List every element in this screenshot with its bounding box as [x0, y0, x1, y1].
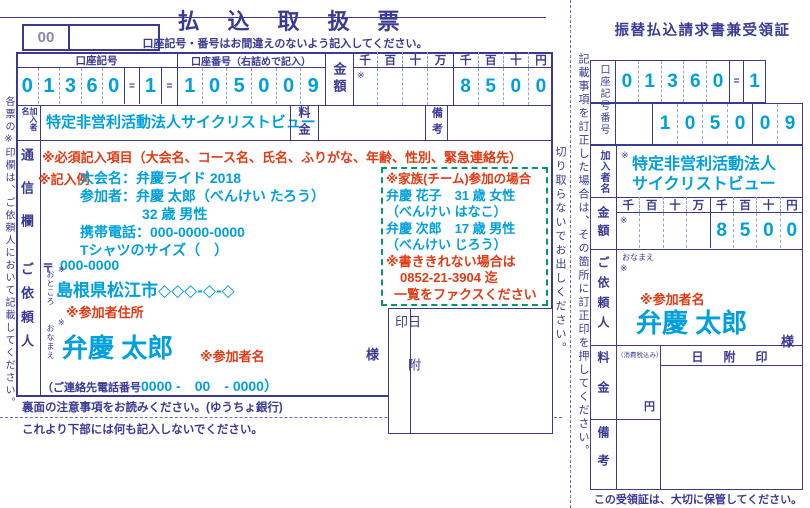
- receipt-date-stamp-label: 日 附 印: [662, 349, 801, 363]
- amount-digit-cell: 0: [780, 213, 803, 248]
- slip-title: 払 込 取 扱 票: [150, 5, 430, 35]
- amount-digit-cell[interactable]: [402, 68, 427, 105]
- amount-digit-cell[interactable]: 0: [503, 68, 528, 105]
- unit-cell: 百: [733, 197, 756, 212]
- amount-digit-row[interactable]: 8 5 0 0: [353, 68, 553, 105]
- receipt-payee-asterisk: ※: [621, 150, 629, 161]
- receipt-number-digit-cell: 0: [752, 104, 777, 144]
- fee-label: 料金: [290, 105, 318, 140]
- amount-unit-row: 千 百 十 万 千 百 十 円: [353, 52, 553, 68]
- footer-note-2: これより下部には何も記入しないでください。: [22, 421, 263, 437]
- overflow-note: 一覧をファクスください: [386, 287, 546, 304]
- receipt-symbol-digit-cell: 0: [616, 61, 638, 102]
- receipt-payee-name-line2: サイクリストビュー: [632, 170, 776, 194]
- amount-digit-cell[interactable]: [377, 68, 402, 105]
- unit-cell: 万: [686, 197, 709, 212]
- name-asterisk: ※: [58, 318, 65, 327]
- address-kana-label: おところ: [46, 270, 54, 312]
- payee-name[interactable]: 特定非営利活動法人サイクリストビュー: [46, 111, 316, 132]
- overflow-note: ※書ききれない場合は: [386, 254, 546, 271]
- amount-digit-cell: 0: [756, 213, 779, 248]
- required-note: ※必須記入項目（大会名、コース名、氏名、ふりがな、年齢、性別、緊急連絡先）: [42, 147, 522, 166]
- unit-cell: 円: [528, 52, 553, 67]
- symbol-digit-cell[interactable]: 1: [38, 68, 60, 104]
- phone-row[interactable]: （ご連絡先電話番号 0000 - 00 - 0000）: [42, 376, 278, 396]
- receipt-symbol-digit-cell: 6: [683, 61, 706, 102]
- unit-cell: 千: [617, 197, 639, 212]
- number-digit-cell[interactable]: 0: [276, 68, 301, 104]
- receipt-client-label: ご依頼人: [597, 256, 609, 340]
- honorific: 様: [366, 344, 379, 363]
- overflow-fax-number: 0852-21-3904 迄: [386, 270, 546, 287]
- receipt-symbol-digit-cell: 0: [706, 61, 729, 102]
- receipt-number-digit-cell: 5: [702, 104, 727, 144]
- example-line: 大会名：弁慶ライド 2018: [80, 168, 241, 188]
- receipt-symbol-digit-cell: 3: [661, 61, 684, 102]
- receipt-symbol-separator: =: [729, 61, 743, 102]
- receipt-client-asterisk: ※: [620, 263, 628, 274]
- unit-cell: 百: [478, 52, 503, 67]
- unit-cell: 百: [377, 52, 402, 67]
- symbol-separator-cell: =: [161, 68, 177, 104]
- unit-cell: 十: [756, 197, 779, 212]
- amount-digit-cell: 5: [733, 213, 756, 248]
- family-box: ※家族(チーム)参加の場合 弁慶 花子 31 歳 女性 （べんけい はなこ） 弁…: [381, 167, 548, 306]
- unit-cell: 十: [503, 52, 528, 67]
- receipt-account-label: 口座記号番号: [598, 64, 608, 142]
- receipt-name-kana-label: おなまえ: [622, 252, 654, 263]
- amount-digit-cell: 8: [710, 213, 733, 248]
- date-stamp-box: 日附印: [388, 308, 553, 434]
- family-member-kana: （べんけい じろう）: [386, 237, 546, 254]
- family-member: 弁慶 花子 31 歳 女性: [386, 188, 546, 205]
- client-label: ご依頼人: [20, 262, 33, 374]
- phone-value[interactable]: 0000 - 00 - 0000）: [141, 376, 278, 396]
- unit-cell: 千: [353, 52, 377, 67]
- receipt-check-digit-cell: 1: [743, 61, 765, 102]
- account-number-header: 口座番号（右詰めで記入）: [177, 54, 325, 67]
- postal-code[interactable]: 000-0000: [60, 257, 119, 273]
- receipt-amount-label: 金額: [596, 201, 610, 247]
- unit-cell: 十: [663, 197, 686, 212]
- receipt-fee-notes-rule: [590, 419, 660, 420]
- receipt-symbol-digit-cell: 1: [638, 61, 661, 102]
- number-digit-cell[interactable]: 9: [300, 68, 325, 104]
- account-number-cells[interactable]: 1 0 5 0 0 9: [178, 68, 325, 104]
- unit-cell: 千: [453, 52, 478, 67]
- client-name[interactable]: 弁慶 太郎: [62, 328, 173, 365]
- address-asterisk: ※: [58, 265, 65, 274]
- phone-label: （ご連絡先電話番号: [42, 379, 141, 395]
- example-line: 参加者：弁慶 太郎（べんけい たろう）: [80, 186, 325, 206]
- receipt-notes-label: 備考: [596, 424, 610, 484]
- notes-cell-divider: [447, 105, 448, 140]
- notes-label: 備考: [425, 105, 447, 140]
- number-digit-cell[interactable]: 5: [226, 68, 251, 104]
- slip-subtitle: 口座記号・番号はお間違えのないよう記入してください。: [110, 36, 460, 50]
- receipt-tax-note: （消費税込み）: [617, 349, 663, 359]
- receipt-yen-label: 円: [644, 398, 655, 414]
- receipt-honorific: 様: [781, 331, 794, 350]
- corner-code: 00: [24, 26, 70, 49]
- receipt-number-digit-cell: 0: [727, 104, 752, 144]
- receipt-symbol-box: 0 1 3 6 0 = 1: [590, 60, 766, 103]
- receipt-number-blank: [616, 104, 652, 144]
- receipt-amount-unit-row: 千 百 十 万 千 百 十 円: [617, 197, 803, 213]
- amount-digit-cell[interactable]: 0: [528, 68, 553, 105]
- example-line: 携帯電話：000-0000-0000: [80, 222, 245, 242]
- receipt-stamp-rule: [660, 365, 803, 366]
- name-annotation: ※参加者名: [200, 346, 265, 365]
- receipt-payee-label: 加入者名: [598, 150, 608, 194]
- amount-label: 金額: [325, 52, 353, 105]
- date-stamp-label-col: 日附印: [389, 309, 411, 433]
- receipt-number-box: 1 0 5 0 0 9: [590, 103, 803, 145]
- amount-asterisk: ※: [357, 70, 365, 81]
- client-address[interactable]: 島根県松江市◇◇◇-◇-◇: [56, 276, 235, 301]
- unit-cell: 百: [639, 197, 662, 212]
- symbol-separator-cell: =: [124, 68, 139, 104]
- amount-digit-cell: [663, 213, 686, 248]
- account-symbol-header: 口座記号: [16, 54, 177, 67]
- label-col-divider: [40, 105, 41, 397]
- account-symbol-cells[interactable]: 0 1 3 6 0 = 1 =: [17, 68, 177, 104]
- unit-cell: 円: [780, 197, 803, 212]
- receipt-stamp-divider: [660, 345, 661, 490]
- row1-bottom-rule: [16, 105, 553, 106]
- family-member: 弁慶 次郎 17 歳 男性: [386, 221, 546, 238]
- receipt-amount-digit-row: 8 5 0 0: [617, 213, 803, 248]
- receipt-title: 振替払込請求書兼受領証: [600, 20, 805, 38]
- symbol-check-digit-cell[interactable]: 1: [139, 68, 161, 104]
- date-stamp-label: 日附印: [394, 315, 420, 433]
- unit-cell: 万: [427, 52, 452, 67]
- amount-digit-cell[interactable]: 5: [478, 68, 503, 105]
- symbol-digit-cell[interactable]: 3: [59, 68, 81, 104]
- receipt-number-digit-cell: 0: [677, 104, 702, 144]
- name-kana-label: おなまえ: [46, 324, 54, 366]
- amount-digit-cell[interactable]: 8: [453, 68, 478, 105]
- receipt-number-digit-cell: 1: [652, 104, 677, 144]
- symbol-digit-cell[interactable]: 6: [81, 68, 103, 104]
- payment-slip-scan: 各票の※印欄は、ご依頼人において記載してください。 00 払 込 取 扱 票 口…: [0, 0, 810, 508]
- receipt-amount-asterisk: ※: [620, 215, 628, 226]
- symbol-digit-cell[interactable]: 0: [17, 68, 38, 104]
- cut-note-left: 切り取らないでお出しください。: [554, 146, 565, 358]
- receipt-row-rule: [590, 345, 803, 346]
- number-digit-cell[interactable]: 1: [178, 68, 202, 104]
- receipt-number-digit-cell: 9: [777, 104, 802, 144]
- symbol-digit-cell[interactable]: 0: [102, 68, 124, 104]
- cut-line: [570, 0, 571, 508]
- unit-cell: 十: [402, 52, 427, 67]
- receipt-row-rule: [590, 249, 803, 250]
- cut-note-right: 記載事項を訂正した場合は、その箇所に訂正印を押してください。: [577, 53, 588, 467]
- family-member-kana: （べんけい はなこ）: [386, 204, 546, 221]
- payee-label: 加入者名: [18, 107, 40, 138]
- receipt-fee-label: 料金: [596, 350, 610, 412]
- amount-digit-cell[interactable]: [427, 68, 452, 105]
- receipt-footer: この受領証は、大切に保管してください。: [593, 492, 803, 506]
- amount-digit-cell: [686, 213, 709, 248]
- receipt-client-name: 弁慶 太郎: [636, 303, 747, 340]
- unit-cell: 千: [710, 197, 733, 212]
- address-annotation: ※参加者住所: [66, 302, 144, 321]
- family-box-title: ※家族(チーム)参加の場合: [386, 171, 546, 188]
- example-line: 32 歳 男性: [142, 204, 207, 224]
- number-digit-cell[interactable]: 0: [251, 68, 276, 104]
- number-digit-cell[interactable]: 0: [202, 68, 227, 104]
- fee-cell-divider: [318, 105, 319, 140]
- row2-bottom-rule: [16, 140, 553, 141]
- correspondence-label: 通信欄: [20, 148, 33, 260]
- slip-side-note: 各票の※印欄は、ご依頼人において記載してください。: [3, 96, 13, 416]
- amount-digit-cell: [639, 213, 662, 248]
- footer-note-1: 裏面の注意事項をお読みください。(ゆうちょ銀行): [22, 399, 283, 415]
